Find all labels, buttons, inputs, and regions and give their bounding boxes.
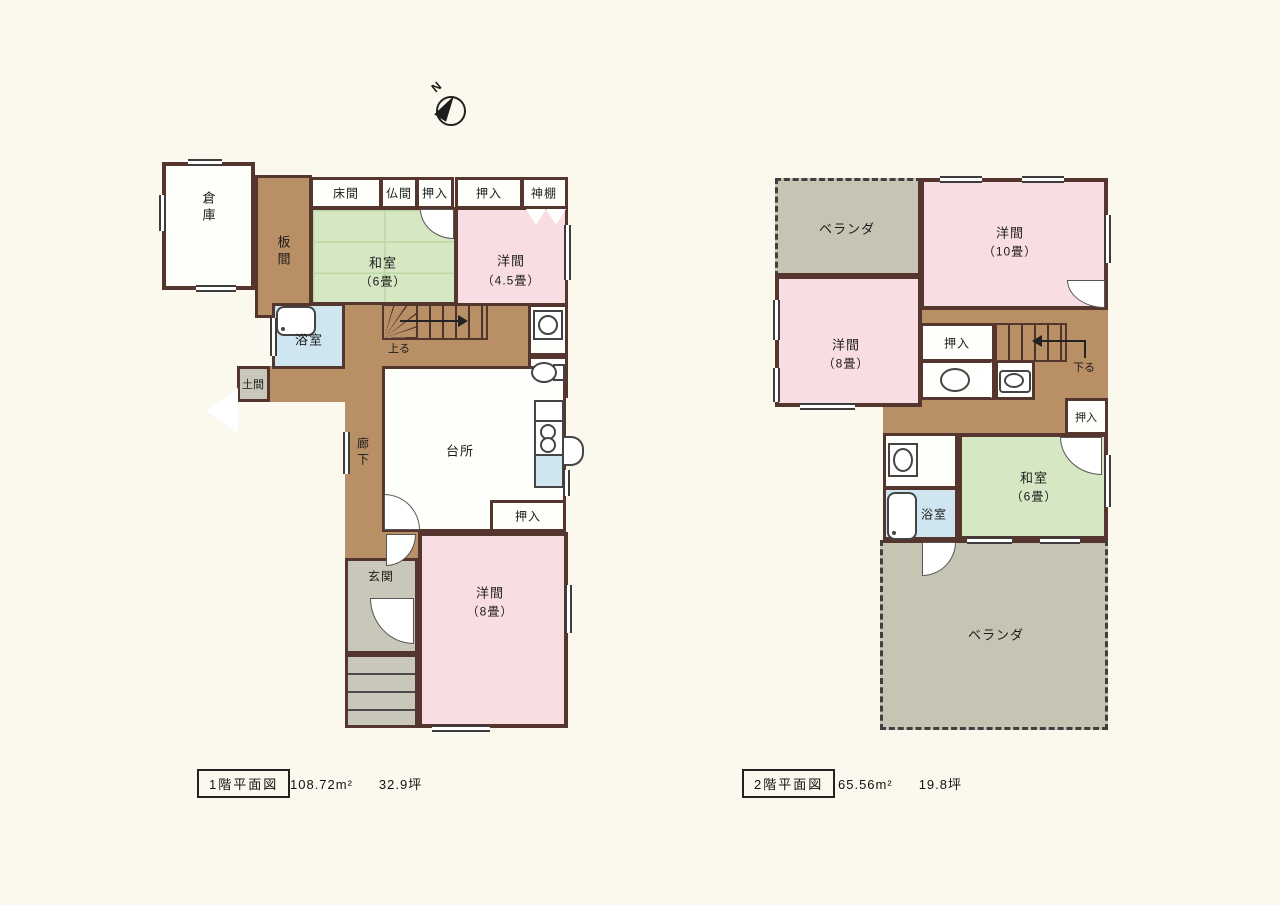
- stairs-1f-arrow-line: [400, 320, 462, 322]
- label-youma8-2f-name: 洋間: [832, 335, 860, 354]
- label-rouka: 廊下: [355, 437, 372, 469]
- washbasin-bowl-icon: [1004, 373, 1024, 388]
- label-youma10-size: （10畳）: [983, 243, 1037, 260]
- label-yokushitsu-2f: 浴室: [921, 506, 947, 523]
- window: [1104, 215, 1111, 263]
- window: [1040, 537, 1080, 544]
- window: [773, 300, 780, 340]
- floor2-area-m2: 65.56m²: [838, 777, 893, 792]
- genkan-steps: [345, 654, 418, 728]
- washing-machine-icon: [533, 310, 563, 340]
- label-washitsu-name: 和室: [369, 253, 397, 272]
- label-souko: 倉庫: [199, 191, 218, 225]
- stairs-1f: [416, 304, 488, 340]
- window: [565, 585, 572, 633]
- window: [967, 537, 1012, 544]
- label-tokonoma: 床間: [333, 185, 359, 202]
- label-youma10-name: 洋間: [996, 223, 1024, 242]
- label-oshiire-kitchen: 押入: [515, 508, 541, 525]
- label-doma: 土間: [242, 376, 264, 392]
- stairs-1f-arrow-head: [458, 315, 468, 327]
- room-youma-8-1f: [418, 532, 568, 728]
- floor2-caption-box: 2階平面図: [742, 769, 835, 798]
- north-arrow-icon: N: [430, 84, 474, 130]
- label-youma8-1f-name: 洋間: [476, 583, 504, 602]
- label-stairs-up: 上る: [388, 340, 410, 356]
- label-daidokoro: 台所: [446, 441, 474, 460]
- window: [564, 225, 571, 280]
- doma-door-wedge: [206, 388, 238, 434]
- label-youma45-size: （4.5畳）: [482, 272, 541, 289]
- window: [1104, 455, 1111, 507]
- window: [196, 285, 236, 292]
- stairs-2f-arrow-elbow: [1084, 340, 1086, 358]
- stairs-1f-fan: [382, 304, 416, 340]
- floorplan-canvas: N: [0, 0, 1280, 905]
- stove-icon: [534, 420, 564, 456]
- window: [800, 403, 855, 410]
- label-kamidana: 神棚: [531, 185, 557, 202]
- room-souko: [162, 162, 255, 290]
- label-genkan: 玄関: [368, 568, 394, 585]
- label-youma45-name: 洋間: [497, 251, 525, 270]
- window: [773, 368, 780, 402]
- bathtub-icon: [887, 492, 917, 540]
- floor1-caption-area: 108.72m²32.9坪: [290, 774, 448, 793]
- label-washitsu-2f-name: 和室: [1020, 468, 1048, 487]
- label-yokushitsu-1f: 浴室: [295, 330, 323, 349]
- window: [563, 470, 570, 496]
- toilet-icon: [940, 368, 970, 392]
- label-oshiire-2f-center: 押入: [944, 335, 970, 352]
- floor2-area-tsubo: 19.8坪: [919, 777, 962, 792]
- window: [188, 159, 222, 166]
- washing-machine-icon: [888, 443, 918, 477]
- floor1-area-m2: 108.72m²: [290, 777, 353, 792]
- label-washitsu-size: （6畳）: [360, 273, 407, 290]
- window: [343, 432, 350, 474]
- label-veranda-top: ベランダ: [819, 219, 875, 238]
- label-veranda-bottom: ベランダ: [968, 625, 1024, 644]
- label-oshiire-top1: 押入: [422, 185, 448, 202]
- stairs-2f-arrow-head: [1032, 335, 1042, 347]
- sink-icon: [534, 454, 564, 488]
- label-butsuma: 仏間: [386, 185, 412, 202]
- window: [270, 318, 277, 356]
- floor1-caption-box: 1階平面図: [197, 769, 290, 798]
- floor1-area-tsubo: 32.9坪: [379, 777, 422, 792]
- stairs-2f-arrow-line: [1040, 340, 1086, 342]
- label-itanoma: 板間: [274, 235, 293, 269]
- kitchen-bay-bump: [564, 436, 584, 466]
- compass-north-label: N: [429, 79, 445, 95]
- stairs-2f: [995, 323, 1067, 362]
- label-oshiire-2f-right: 押入: [1075, 409, 1097, 425]
- kitchen-counter-icon: [534, 400, 564, 422]
- label-stairs-down: 下る: [1073, 359, 1095, 375]
- label-washitsu-2f-size: （6畳）: [1011, 488, 1058, 505]
- toilet-icon: [531, 362, 557, 383]
- label-oshiire-top2: 押入: [476, 185, 502, 202]
- window: [1022, 176, 1064, 183]
- window: [940, 176, 982, 183]
- window: [159, 195, 166, 231]
- label-youma8-2f-size: （8畳）: [823, 355, 870, 372]
- window: [432, 725, 490, 732]
- label-youma8-1f-size: （8畳）: [467, 603, 514, 620]
- floor2-caption-area: 65.56m²19.8坪: [838, 774, 988, 793]
